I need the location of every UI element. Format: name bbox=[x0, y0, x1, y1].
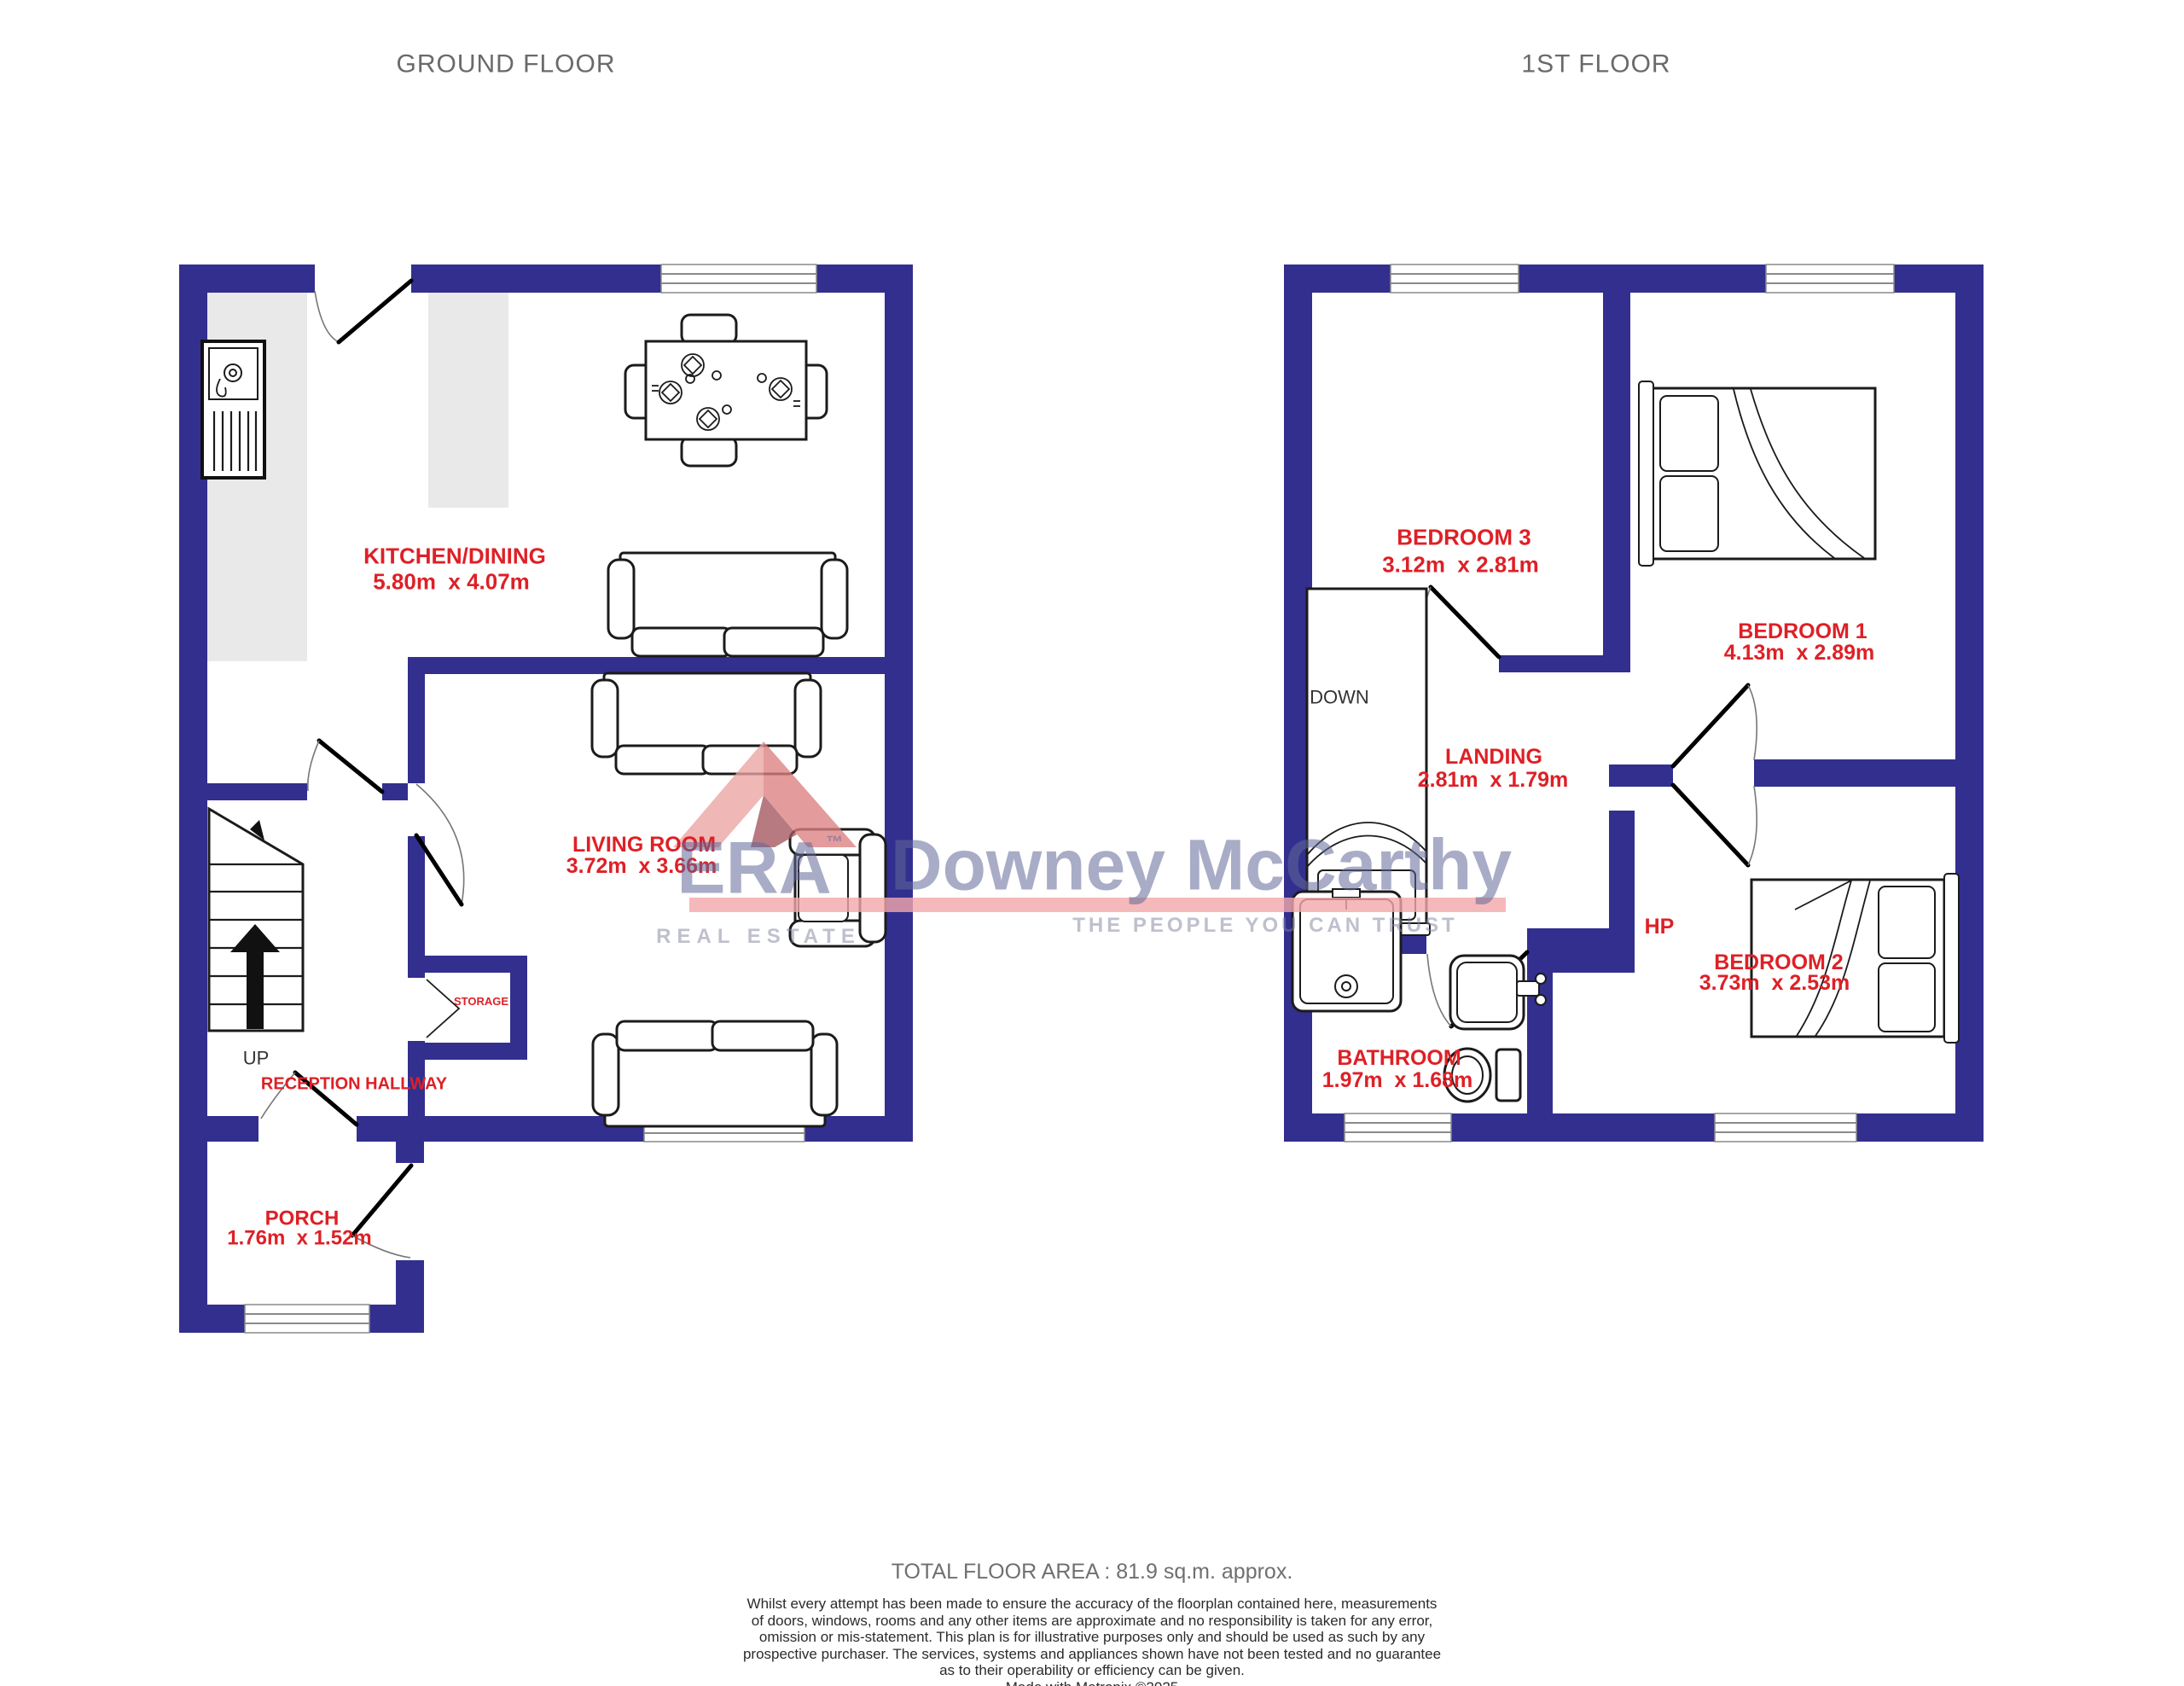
living-sofa-top bbox=[592, 673, 821, 774]
disclaimer-line: as to their operability or efficiency ca… bbox=[0, 1662, 2184, 1679]
bedroom1-double-bed bbox=[1639, 381, 1875, 566]
stairs-up-label: UP bbox=[243, 1048, 270, 1067]
bedroom1-door bbox=[1673, 685, 1757, 766]
dining-table bbox=[625, 315, 827, 466]
disclaimer-line: omission or mis-statement. This plan is … bbox=[0, 1629, 2184, 1646]
bedroom2-door bbox=[1673, 785, 1757, 865]
kitchen-dining-dims: 5.80m x 4.07m bbox=[373, 570, 530, 593]
bathroom-dims: 1.97m x 1.68m bbox=[1322, 1069, 1473, 1091]
metropix-credit: Made with Metropix ©2025 bbox=[0, 1679, 2184, 1686]
bedroom3-window bbox=[1391, 265, 1519, 293]
bedroom1-dims: 4.13m x 2.89m bbox=[1724, 642, 1875, 664]
bedroom2-dims: 3.73m x 2.53m bbox=[1699, 972, 1850, 994]
bedroom3-label: BEDROOM 3 bbox=[1397, 526, 1531, 549]
disclaimer-line: of doors, windows, rooms and any other i… bbox=[0, 1613, 2184, 1630]
porch-window bbox=[245, 1305, 369, 1333]
bathroom-window bbox=[1345, 1113, 1451, 1142]
first-floor-plan bbox=[1284, 265, 1984, 1142]
stairs-down-label: DOWN bbox=[1310, 687, 1369, 706]
floorplan-page: GROUND FLOOR 1ST FLOOR KITCHEN/DINING 5.… bbox=[0, 0, 2184, 1686]
bathroom-label: BATHROOM bbox=[1337, 1047, 1461, 1069]
disclaimer: Whilst every attempt has been made to en… bbox=[0, 1596, 2184, 1686]
watermark-name: Downey McCarthy bbox=[891, 824, 1512, 907]
storage-label: STORAGE bbox=[454, 996, 508, 1008]
bedroom1-window bbox=[1766, 265, 1894, 293]
porch-dims: 1.76m x 1.52m bbox=[227, 1227, 371, 1248]
bedroom3-dims: 3.12m x 2.81m bbox=[1382, 553, 1539, 576]
bedroom1-label: BEDROOM 1 bbox=[1738, 620, 1867, 642]
ground-floor-title: GROUND FLOOR bbox=[396, 50, 615, 78]
living-sofa-bottom bbox=[593, 1021, 837, 1126]
kitchen-sink bbox=[202, 341, 264, 478]
kitchen-dining-label: KITCHEN/DINING bbox=[363, 544, 546, 567]
landing-dims: 2.81m x 1.79m bbox=[1418, 769, 1569, 791]
first-floor-title: 1ST FLOOR bbox=[1521, 50, 1670, 78]
stairs-up bbox=[209, 809, 303, 1031]
hot-press-label: HP bbox=[1645, 916, 1675, 938]
total-floor-area: TOTAL FLOOR AREA : 81.9 sq.m. approx. bbox=[0, 1560, 2184, 1584]
footer: TOTAL FLOOR AREA : 81.9 sq.m. approx. Wh… bbox=[0, 1560, 2184, 1686]
kitchen-window bbox=[661, 265, 816, 293]
watermark-brand: ERA bbox=[677, 827, 832, 911]
reception-hallway-label: RECEPTION HALLWAY bbox=[261, 1076, 447, 1094]
watermark-tagline-left: REAL ESTATE bbox=[656, 925, 861, 949]
bedroom2-window bbox=[1715, 1113, 1856, 1142]
storage-bifold-door bbox=[427, 980, 459, 1038]
disclaimer-line: Whilst every attempt has been made to en… bbox=[0, 1596, 2184, 1613]
bedroom3-door bbox=[1418, 587, 1499, 657]
watermark-tm: ™ bbox=[826, 834, 843, 853]
landing-label: LANDING bbox=[1445, 746, 1542, 768]
watermark-tagline-right: THE PEOPLE YOU CAN TRUST bbox=[1072, 914, 1458, 938]
kitchen-sofa bbox=[608, 553, 847, 656]
disclaimer-line: prospective purchaser. The services, sys… bbox=[0, 1646, 2184, 1663]
